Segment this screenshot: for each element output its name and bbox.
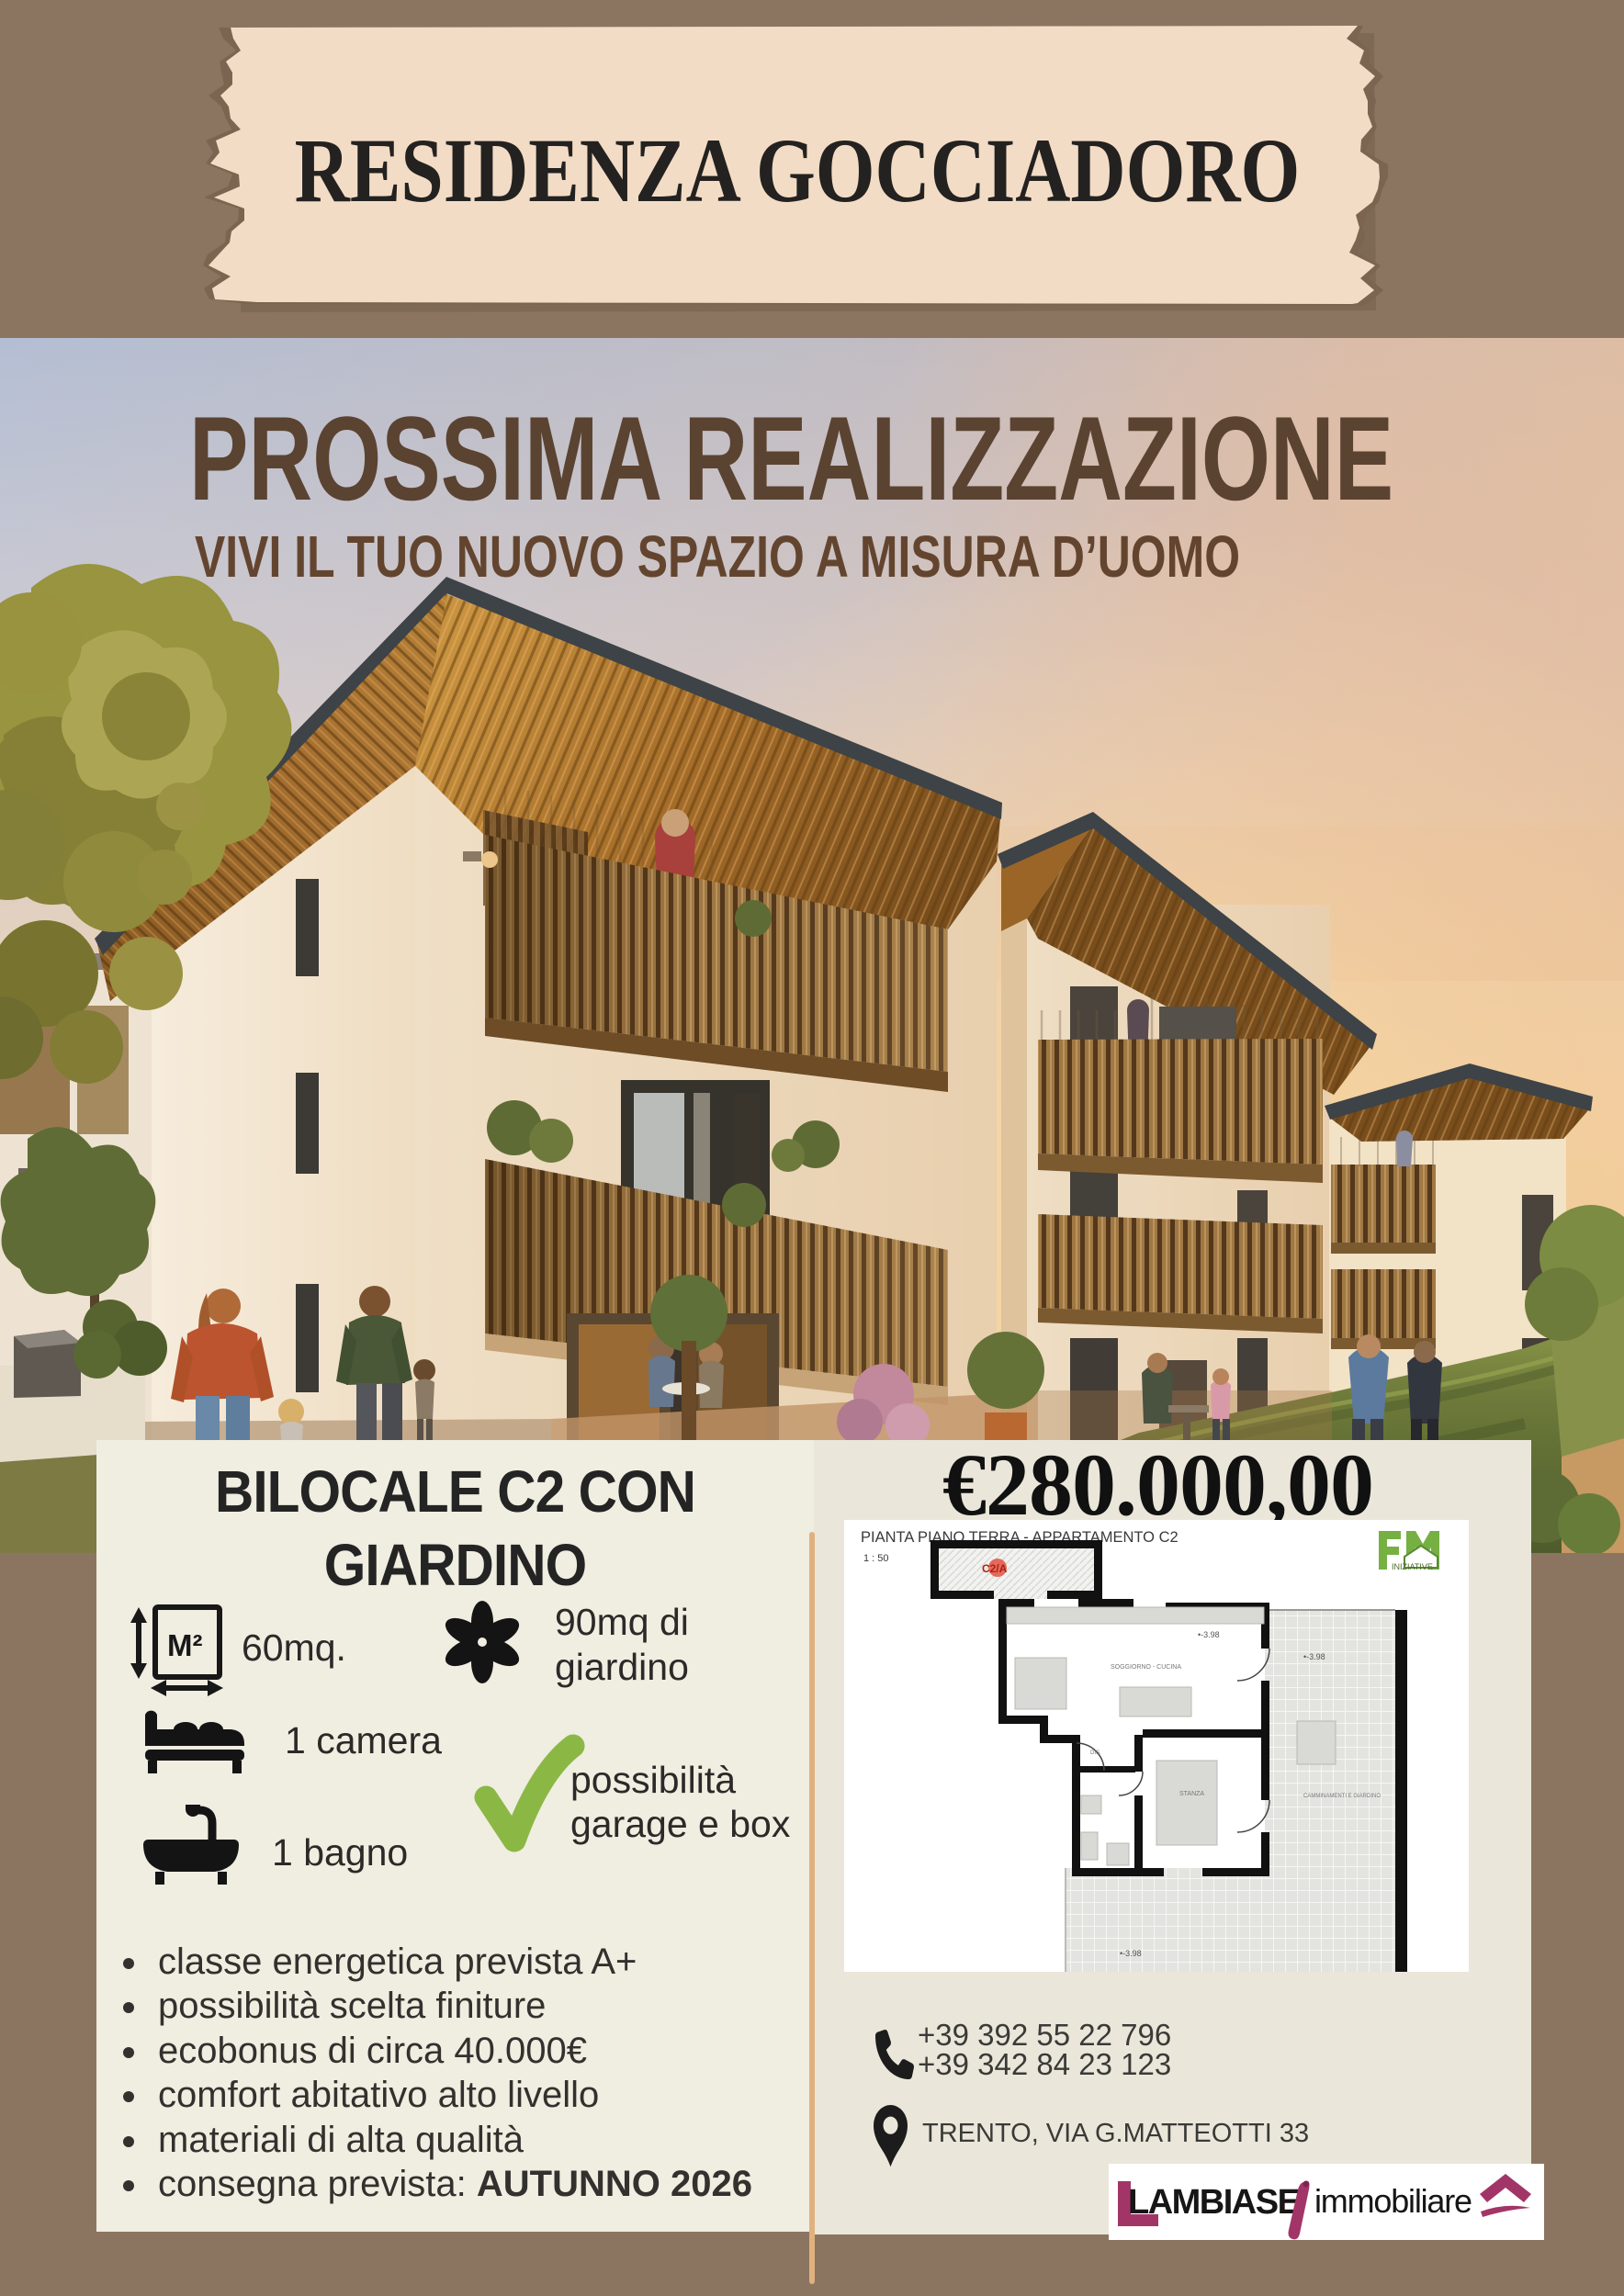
svg-text:C2/A: C2/A — [982, 1562, 1008, 1575]
svg-text:CAMMINAMENTI E GIARDINO: CAMMINAMENTI E GIARDINO — [1303, 1794, 1381, 1799]
svg-text:•-3.98: •-3.98 — [1303, 1652, 1325, 1661]
svg-text:1 : 50: 1 : 50 — [863, 1553, 889, 1564]
svg-text:•-3.98: •-3.98 — [1120, 1949, 1142, 1958]
svg-text:immobiliare: immobiliare — [1314, 2182, 1472, 2220]
svg-text:M²: M² — [167, 1628, 202, 1662]
svg-text:DIS.: DIS. — [1090, 1750, 1101, 1756]
svg-text:STANZA: STANZA — [1179, 1791, 1204, 1797]
svg-text:garage e box: garage e box — [570, 1803, 791, 1845]
svg-text:1 bagno: 1 bagno — [272, 1831, 408, 1874]
svg-text:LAMBIASE: LAMBIASE — [1128, 2183, 1300, 2222]
svg-text:1 camera: 1 camera — [285, 1719, 442, 1761]
svg-text:90mq di: 90mq di — [555, 1601, 689, 1643]
svg-text:giardino: giardino — [555, 1646, 689, 1688]
svg-text:60mq.: 60mq. — [242, 1626, 346, 1669]
svg-text:INIZIATIVE: INIZIATIVE — [1392, 1562, 1433, 1571]
svg-text:SOGGIORNO - CUCINA: SOGGIORNO - CUCINA — [1111, 1664, 1181, 1671]
svg-text:possibilità: possibilità — [570, 1759, 736, 1801]
svg-text:•-3.98: •-3.98 — [1198, 1630, 1220, 1639]
